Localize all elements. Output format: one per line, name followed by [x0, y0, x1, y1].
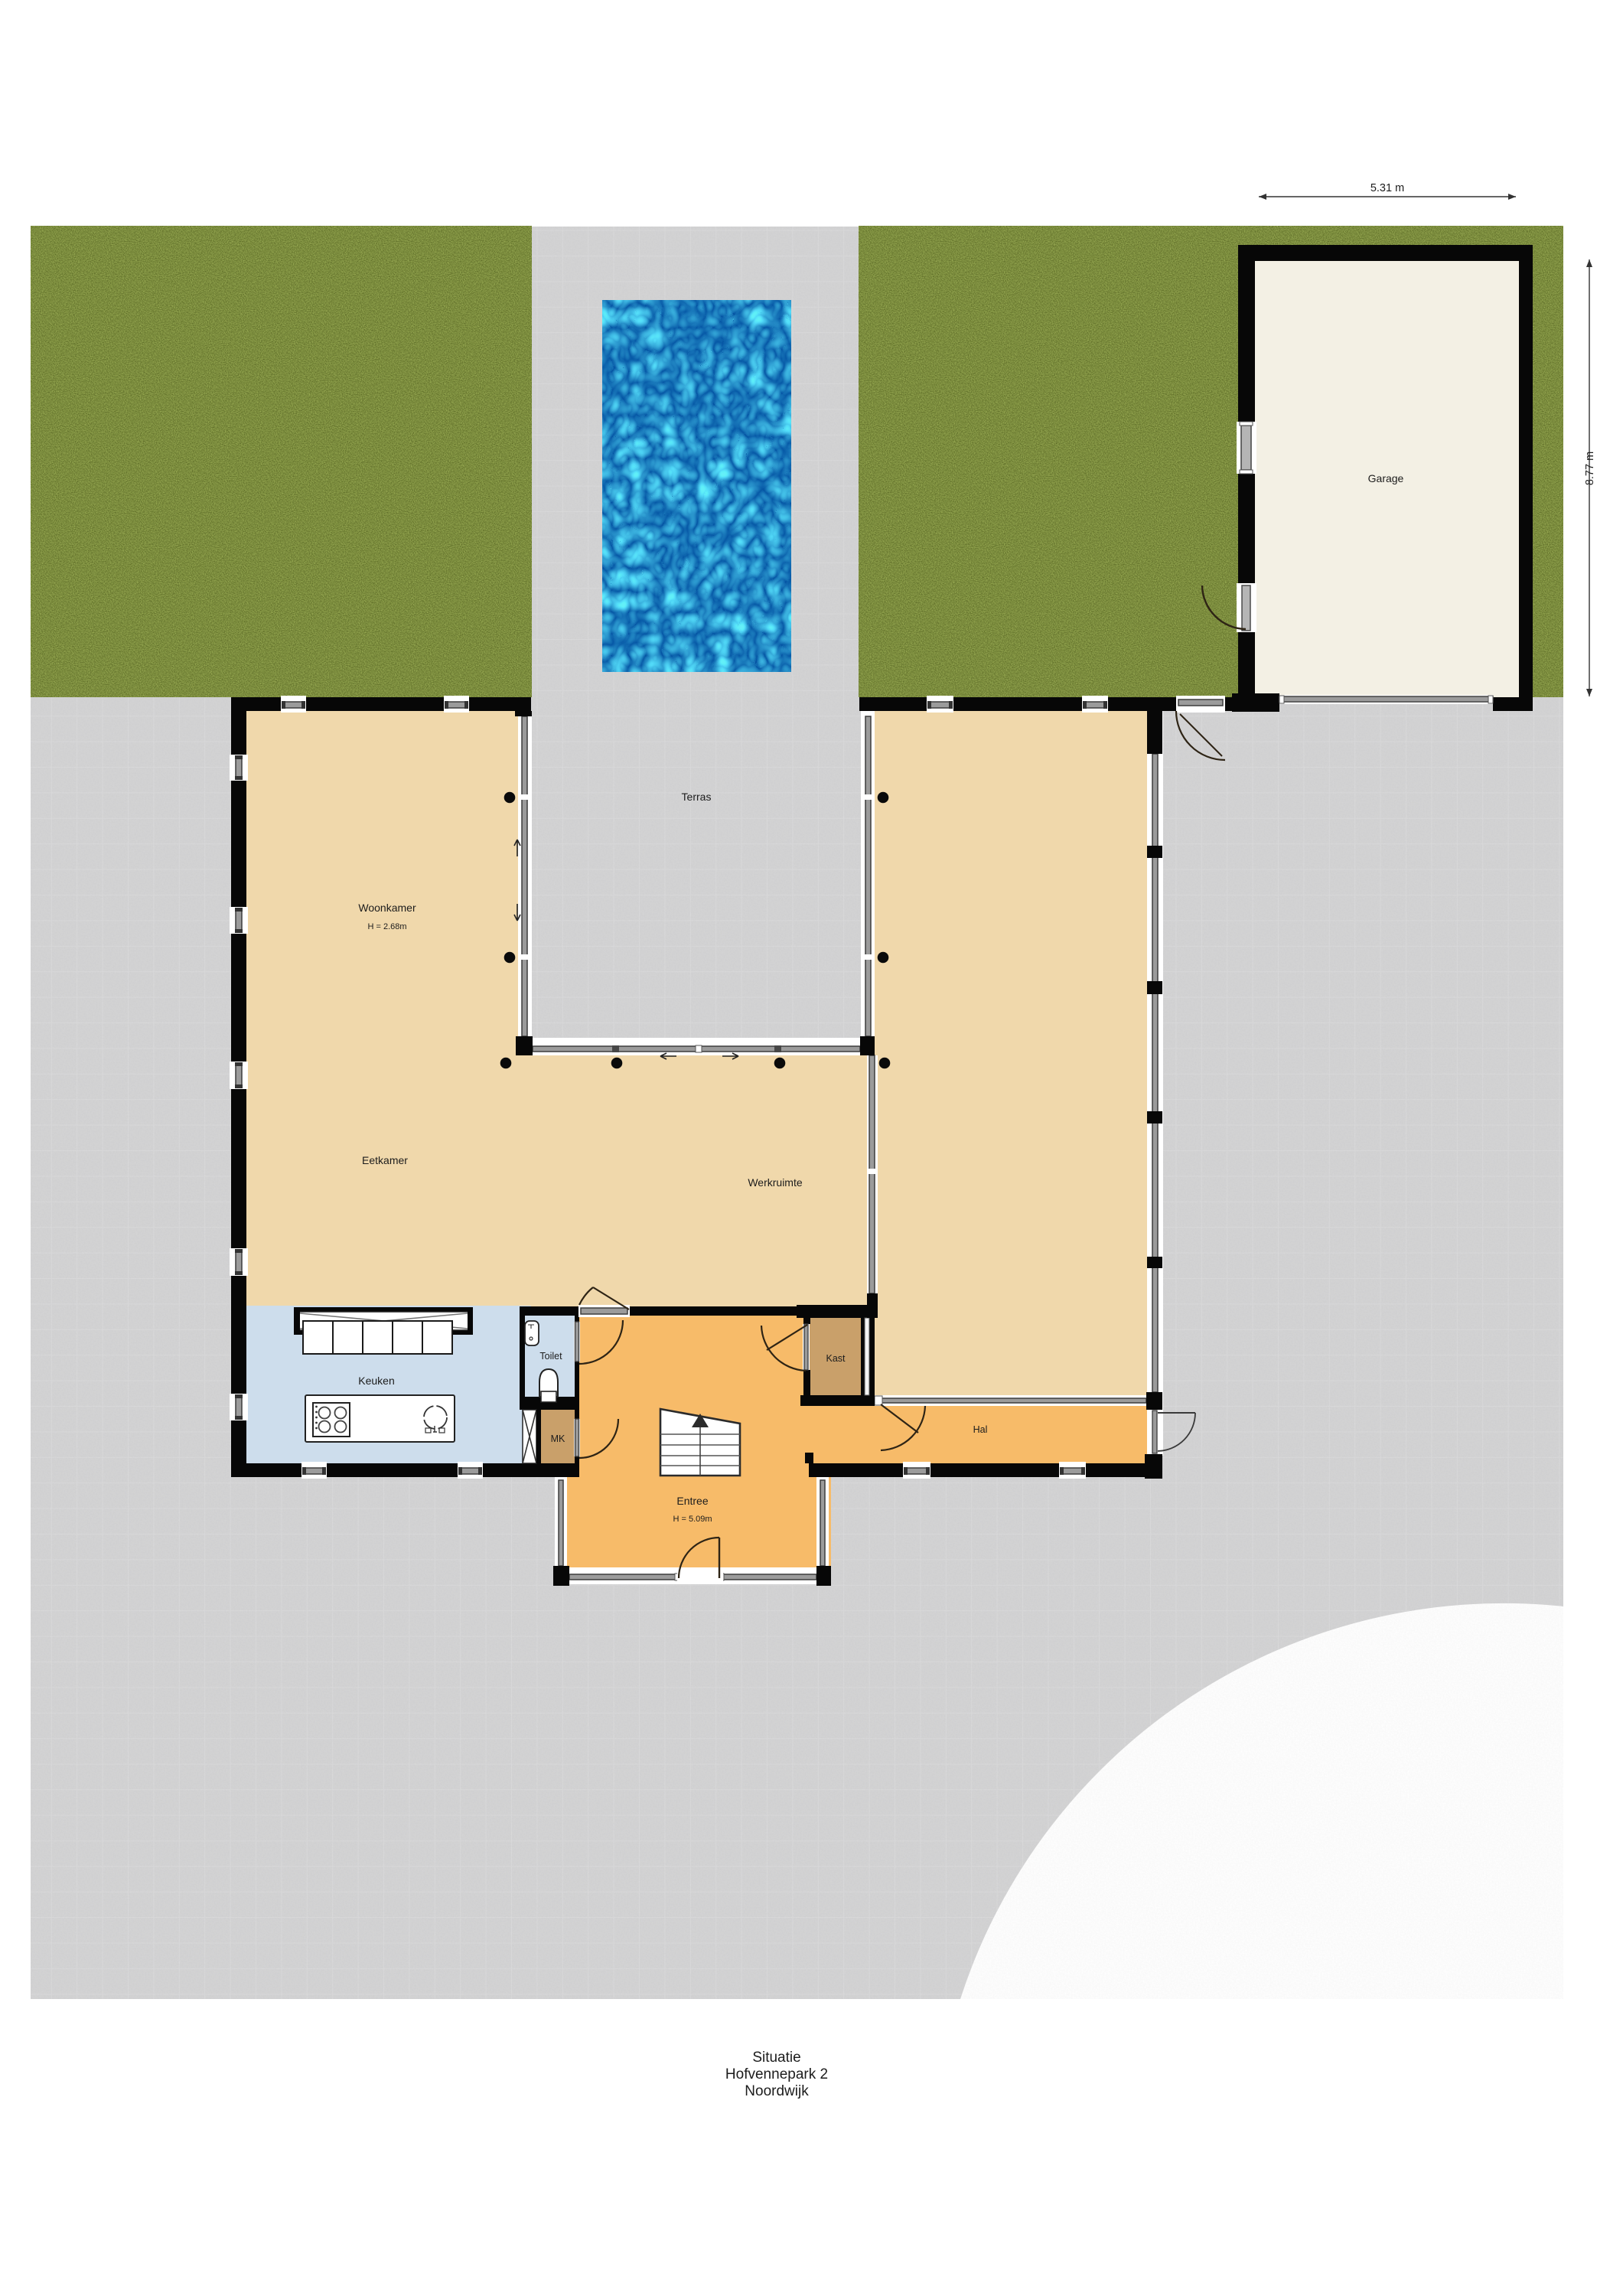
- svg-text:5.31 m: 5.31 m: [1370, 182, 1404, 194]
- svg-text:Noordwijk: Noordwijk: [745, 2083, 809, 2099]
- svg-text:Woonkamer: Woonkamer: [358, 902, 416, 914]
- svg-text:Werkruimte: Werkruimte: [748, 1176, 803, 1189]
- svg-text:H = 2.68m: H = 2.68m: [367, 922, 406, 931]
- svg-text:Hal: Hal: [973, 1424, 988, 1435]
- svg-text:Kast: Kast: [826, 1353, 846, 1364]
- svg-text:Entree: Entree: [676, 1495, 708, 1507]
- svg-text:Keuken: Keuken: [358, 1375, 394, 1387]
- svg-text:H = 5.09m: H = 5.09m: [673, 1515, 712, 1524]
- svg-text:Terras: Terras: [682, 791, 712, 803]
- svg-text:Toilet: Toilet: [539, 1351, 562, 1362]
- svg-text:MK: MK: [551, 1433, 565, 1444]
- svg-text:8.77 m: 8.77 m: [1584, 452, 1596, 485]
- svg-text:Situatie: Situatie: [752, 2050, 800, 2066]
- svg-text:Garage: Garage: [1368, 472, 1404, 484]
- svg-text:Eetkamer: Eetkamer: [362, 1154, 408, 1166]
- svg-text:Hofvennepark 2: Hofvennepark 2: [725, 2066, 828, 2082]
